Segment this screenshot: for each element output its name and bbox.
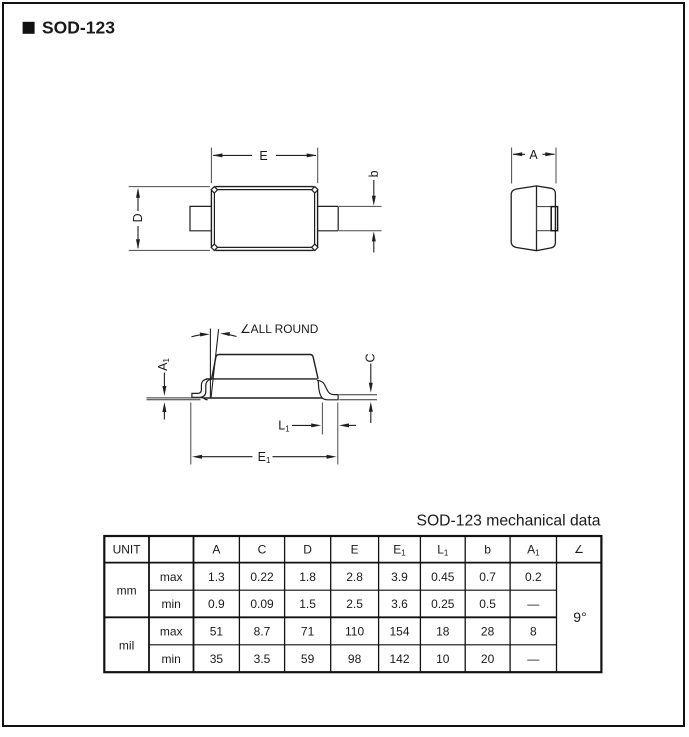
svg-text:20: 20 <box>481 652 495 666</box>
svg-text:0.2: 0.2 <box>525 570 542 584</box>
svg-text:—: — <box>527 597 539 611</box>
svg-text:9°: 9° <box>573 609 586 625</box>
svg-text:142: 142 <box>389 652 409 666</box>
svg-text:2.8: 2.8 <box>346 570 363 584</box>
svg-text:max: max <box>160 625 183 639</box>
svg-text:0.22: 0.22 <box>250 570 274 584</box>
svg-text:C: C <box>258 543 267 557</box>
svg-text:28: 28 <box>481 625 495 639</box>
svg-text:18: 18 <box>436 625 450 639</box>
svg-text:A: A <box>212 543 220 557</box>
svg-text:59: 59 <box>301 652 315 666</box>
svg-text:154: 154 <box>389 625 409 639</box>
svg-text:51: 51 <box>210 625 224 639</box>
svg-text:min: min <box>162 597 181 611</box>
svg-text:D: D <box>131 213 145 222</box>
svg-text:mm: mm <box>117 584 137 598</box>
svg-text:10: 10 <box>436 652 450 666</box>
svg-text:3.9: 3.9 <box>391 570 408 584</box>
svg-text:A: A <box>529 148 538 162</box>
svg-text:71: 71 <box>301 625 315 639</box>
svg-text:b: b <box>367 170 381 177</box>
svg-text:8.7: 8.7 <box>254 625 271 639</box>
svg-text:3.5: 3.5 <box>254 652 271 666</box>
svg-text:min: min <box>162 652 181 666</box>
svg-text:0.9: 0.9 <box>208 597 225 611</box>
svg-text:UNIT: UNIT <box>113 543 142 557</box>
svg-text:1.3: 1.3 <box>208 570 225 584</box>
svg-text:98: 98 <box>348 652 362 666</box>
svg-text:0.09: 0.09 <box>250 597 274 611</box>
svg-text:D: D <box>303 543 312 557</box>
svg-text:8: 8 <box>530 625 537 639</box>
svg-text:35: 35 <box>210 652 224 666</box>
svg-text:0.25: 0.25 <box>431 597 455 611</box>
svg-text:SOD-123: SOD-123 <box>42 18 115 38</box>
svg-text:0.5: 0.5 <box>479 597 496 611</box>
svg-text:∠: ∠ <box>574 544 584 556</box>
svg-text:0.45: 0.45 <box>431 570 455 584</box>
svg-text:110: 110 <box>345 625 364 639</box>
svg-text:1.5: 1.5 <box>299 597 316 611</box>
svg-text:SOD-123 mechanical data: SOD-123 mechanical data <box>417 513 601 530</box>
svg-text:E: E <box>351 543 359 557</box>
svg-text:b: b <box>484 543 491 557</box>
svg-text:max: max <box>160 570 183 584</box>
svg-text:0.7: 0.7 <box>479 570 496 584</box>
svg-text:—: — <box>527 652 539 666</box>
svg-text:C: C <box>364 353 378 362</box>
svg-text:mil: mil <box>119 638 134 652</box>
svg-text:2.5: 2.5 <box>346 597 363 611</box>
svg-text:∠ALL ROUND: ∠ALL ROUND <box>240 322 319 336</box>
svg-text:3.6: 3.6 <box>391 597 408 611</box>
svg-text:1.8: 1.8 <box>299 570 316 584</box>
svg-text:E: E <box>259 149 267 163</box>
